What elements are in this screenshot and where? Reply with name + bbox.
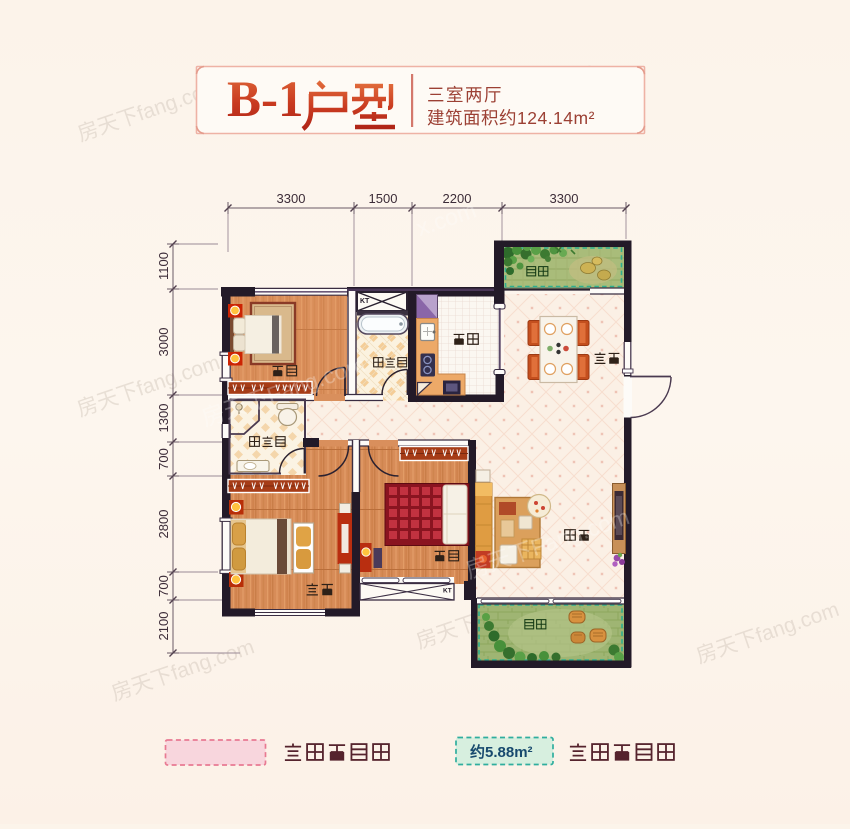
svg-text:建筑面积约124.14m²: 建筑面积约124.14m² [427,108,595,128]
svg-text:3000: 3000 [156,328,171,357]
svg-text:KT: KT [443,588,452,595]
svg-text:1100: 1100 [156,252,171,280]
svg-text:2800: 2800 [156,510,171,539]
svg-text:700: 700 [156,448,171,470]
svg-text:1500: 1500 [369,191,398,206]
svg-text:三室两厅: 三室两厅 [427,85,503,105]
svg-text:约5.88m²: 约5.88m² [470,743,533,761]
svg-text:2100: 2100 [156,612,171,641]
svg-text:1300: 1300 [156,404,171,433]
svg-text:3300: 3300 [277,191,306,206]
svg-text:B-1: B-1 [227,72,304,128]
svg-text:KT: KT [360,298,370,305]
svg-text:700: 700 [156,575,171,597]
svg-text:3300: 3300 [550,191,579,206]
